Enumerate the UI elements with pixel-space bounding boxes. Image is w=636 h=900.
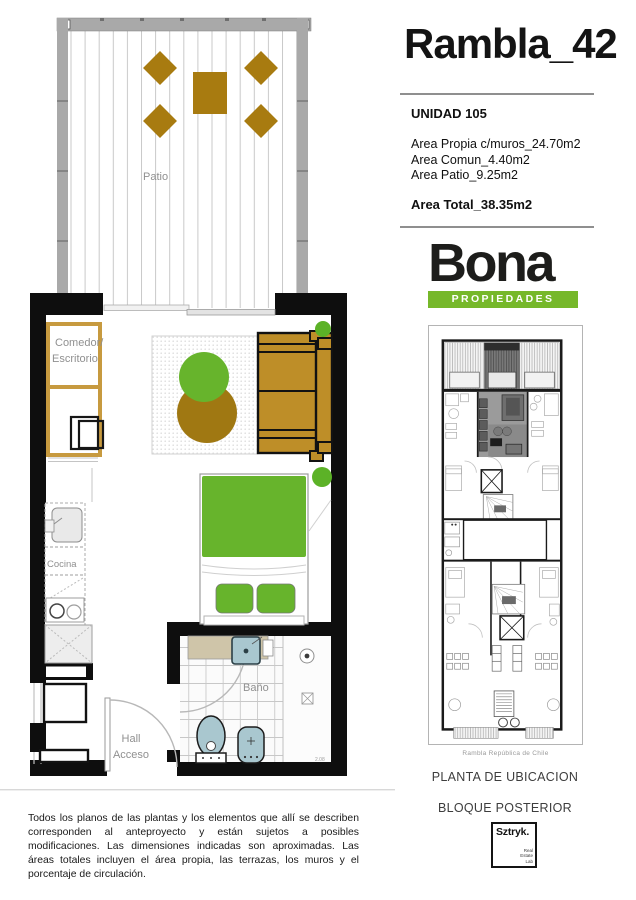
unit-floorplan: Patio [0,0,400,810]
kitchen-label: Cocina [47,559,77,570]
hall-label-1: Hall [122,733,141,745]
sofa [258,331,332,461]
dining-desk: Comedor/ Escritorio [48,324,104,502]
patio-label: Patio [143,171,168,183]
patio-area: Patio [57,18,311,308]
rule-top [400,93,594,95]
area-line: Area Comun_4.40m2 [411,153,581,169]
area-total: Area Total_38.35m2 [411,197,532,212]
bath-dimension: 2.08 [315,757,325,763]
bed-blanket [202,476,306,557]
studio-name: Sztryk. [493,824,535,838]
brand-name: Bona [428,239,578,289]
plan-caption-2: BLOQUE POSTERIOR [395,801,615,815]
rule-bottom [400,226,594,228]
plant-large [179,352,229,402]
studio-subtitle: Real Estate Lab [520,848,533,864]
divider-line [0,789,395,790]
kitchen: Cocina [40,503,92,762]
area-line: Area Propia c/muros_24.70m2 [411,137,581,153]
unit-name: UNIDAD 105 [411,106,487,121]
plant-mid-right [312,467,332,487]
kitchen-sink [52,508,82,542]
flyer-page: Patio [0,0,636,900]
street-caption: Rambla República de Chile [413,750,598,757]
bath-label: Baño [243,682,269,694]
dining-label-1: Comedor/ [55,337,104,349]
page-title: Rambla_42 [404,20,634,68]
area-lines: Area Propia c/muros_24.70m2 Area Comun_4… [411,137,581,184]
bed [200,474,331,625]
area-line: Area Patio_9.25m2 [411,168,581,184]
bathroom: Baño 2.08 [180,636,331,763]
closet [44,684,86,722]
brand-logo: Bona PROPIEDADES [428,239,578,308]
location-plan-box [428,325,583,745]
entry-bench [40,750,88,762]
highlighted-unit [478,392,526,457]
dining-label-2: Escritorio [52,353,98,365]
bed-pillow [257,584,295,613]
plan-caption-1: PLANTA DE UBICACION [395,770,615,784]
patio-table [193,72,227,114]
bed-pillow [216,584,253,613]
patio-wall-left [57,18,68,295]
patio-wall-right [297,18,308,295]
brand-tagline: PROPIEDADES [428,291,578,308]
disclaimer-text: Todos los planos de las plantas y los el… [28,812,359,882]
plant-top-right [315,321,331,337]
studio-logo: Sztryk. Real Estate Lab [491,822,537,868]
hall-label-2: Acceso [113,749,149,761]
building-plan [429,326,580,742]
hall: Hall Acceso [105,698,177,771]
